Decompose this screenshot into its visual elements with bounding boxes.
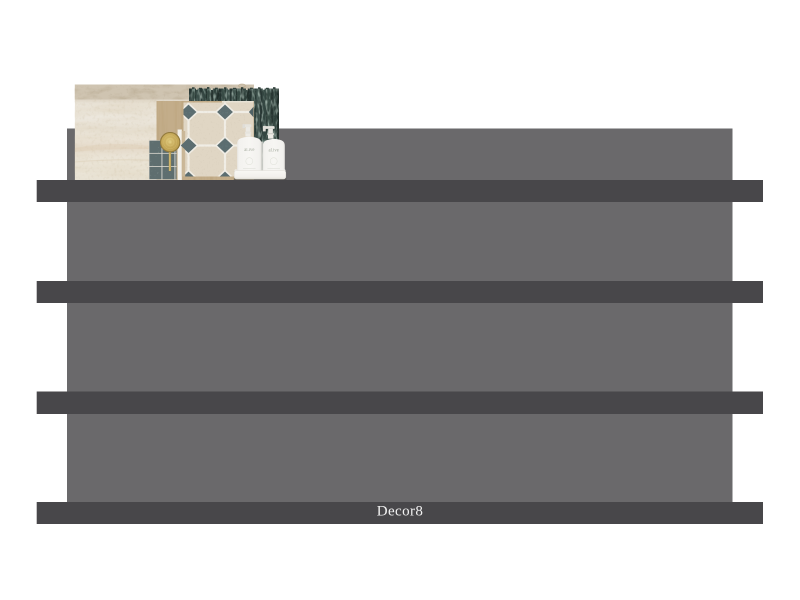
svg-text:al.ive: al.ive	[269, 149, 279, 154]
svg-text:al.ive: al.ive	[244, 148, 254, 153]
svg-text:Decor8: Decor8	[377, 504, 424, 520]
